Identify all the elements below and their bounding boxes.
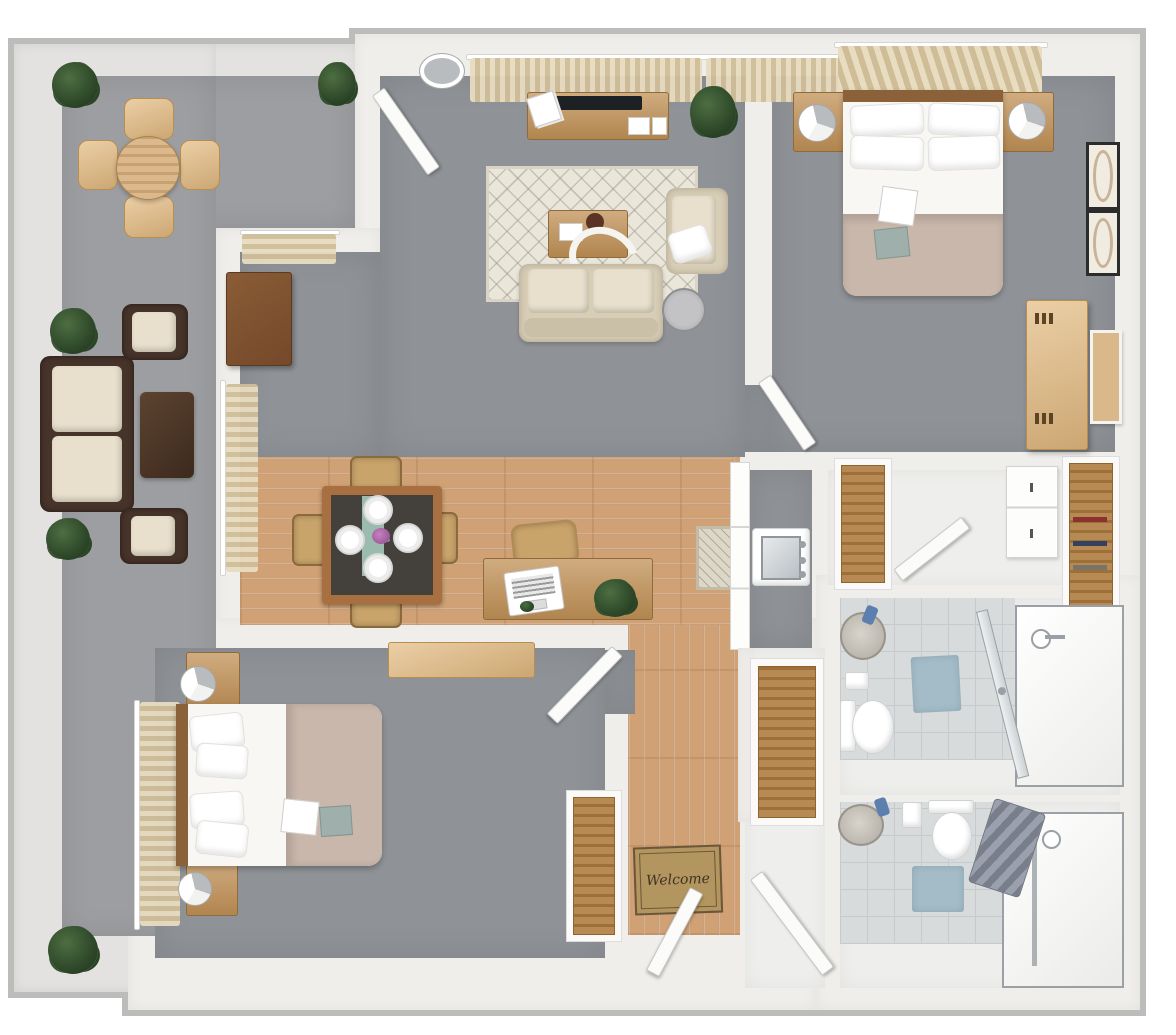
living-loveseat: [519, 264, 663, 342]
bedroom1-bed: [176, 704, 382, 866]
living-side-table: [662, 288, 706, 332]
closet1-shelves: [841, 465, 885, 583]
closet1-frame: [834, 458, 892, 590]
wardrobe-vents-top: [1035, 313, 1039, 324]
cabinet-handle-2: [1030, 529, 1033, 538]
utility-sink-basin: [761, 536, 801, 580]
bedroom1-headboard: [176, 704, 188, 866]
loveseat-cushion-left: [528, 269, 589, 313]
hall-white-cabinet: [1006, 466, 1058, 558]
patio-armchair-south-cushion: [131, 516, 175, 556]
toilet-paper-holder-2: [902, 802, 922, 828]
bathroom2-toilet-bowl: [932, 812, 972, 860]
patio-plant-3: [50, 308, 96, 354]
bedroom1-lamp-south: [178, 872, 212, 906]
utility-sink: [752, 528, 810, 586]
shower-head-2: [1042, 830, 1061, 849]
bedroom1-dresser: [388, 642, 535, 678]
bedroom2-lamp-left: [798, 104, 836, 142]
laptop: [503, 565, 565, 616]
glass-door-handle: [997, 686, 1007, 696]
shower-head-1: [1031, 629, 1051, 649]
ext-window-curtain: [242, 234, 336, 264]
linen-closet-frame: [750, 658, 824, 826]
bedroom2-pillow-3: [849, 135, 924, 172]
bedroom1-tray: [280, 798, 319, 836]
desk-sprig: [520, 601, 534, 612]
patio-dining-table: [116, 136, 180, 200]
table-flowers: [372, 528, 390, 544]
bathroom1-toilet-bowl: [852, 700, 894, 754]
welcome-mat-text: Welcome: [646, 871, 710, 889]
bedroom2-headboard: [843, 90, 1003, 102]
patio-plant-5: [48, 926, 98, 974]
bedroom1-pillow-2: [195, 742, 249, 780]
bathroom1-bath-mat: [911, 655, 962, 713]
bedroom2-mirror: [1090, 330, 1122, 424]
floor-plan: Welcome: [0, 0, 1176, 1035]
toilet-paper-holder-1: [845, 672, 869, 690]
patio-sofa-cushion-bottom: [52, 436, 122, 502]
bedroom2-pillow-2: [927, 102, 1001, 138]
bedroom1-duvet: [286, 704, 382, 866]
utility-faucet: [799, 541, 806, 548]
bedroom1-curtains: [140, 702, 180, 926]
patio-chair-north: [124, 98, 174, 140]
patio-sofa: [40, 356, 134, 512]
patio-plant-4: [46, 518, 90, 560]
bedroom1-pillow-4: [194, 819, 249, 858]
bedroom1-book: [319, 805, 353, 837]
bedroom1-lamp-north: [180, 666, 216, 702]
bedroom2-duvet: [843, 214, 1003, 296]
desk: [483, 558, 653, 620]
loveseat-cushion-right: [593, 269, 654, 313]
bathroom2-bath-mat: [912, 866, 964, 912]
bedroom1-closet-frame: [566, 790, 622, 942]
wall-art-frame-1: [1086, 142, 1120, 210]
shower-arm-1: [1045, 635, 1065, 639]
wall-art-frame-2: [1086, 210, 1120, 276]
place-setting-east: [393, 523, 423, 553]
patio-armchair-north: [122, 304, 188, 360]
bedroom1-closet-shelves: [573, 797, 615, 935]
bedroom2-curtains: [838, 46, 1042, 94]
bedroom2-lamp-right: [1008, 102, 1046, 140]
cabinet-handle-1: [1030, 483, 1033, 492]
corner-cabinet: [226, 272, 292, 366]
place-setting-west: [335, 525, 365, 555]
desk-plant: [594, 579, 636, 617]
walkin-closet-shelves: [1069, 463, 1113, 611]
nook-cabinet-strip: [730, 462, 750, 650]
bedroom2-tray: [878, 186, 919, 227]
bedroom2-book: [874, 226, 911, 259]
bathroom1-shower-stall: [1015, 605, 1124, 787]
patio-plant-2: [318, 62, 356, 106]
living-plant: [690, 86, 736, 138]
laptop-keyboard: [511, 573, 555, 599]
patio-chair-south: [124, 196, 174, 238]
linen-closet-shelves: [758, 666, 816, 818]
console-drawer-2: [652, 117, 667, 135]
bedroom2-bed: [843, 90, 1003, 296]
tv: [548, 96, 642, 110]
ceiling-light-icon: [420, 54, 464, 88]
patio-coffee-table: [140, 392, 194, 478]
console-drawer-1: [628, 117, 650, 135]
closet-stored-items: [1073, 517, 1107, 522]
patio-sofa-cushion-top: [52, 366, 122, 432]
place-setting-north: [363, 495, 393, 525]
welcome-mat: Welcome: [633, 844, 723, 915]
patio-armchair-south: [120, 508, 188, 564]
patio-armchair-north-cushion: [132, 312, 176, 352]
bedroom2-pillow-4: [927, 135, 1000, 171]
patio-chair-west: [78, 140, 118, 190]
wardrobe-vents-bottom: [1035, 413, 1039, 424]
loveseat-back: [524, 318, 658, 337]
patio-slider-curtain: [226, 384, 258, 572]
patio-chair-east: [180, 140, 220, 190]
bedroom2-pillow-1: [849, 102, 925, 138]
patio-plant-1: [52, 62, 98, 108]
bedroom2-wardrobe: [1026, 300, 1088, 450]
place-setting-south: [363, 553, 393, 583]
walkin-closet-frame: [1062, 456, 1120, 618]
